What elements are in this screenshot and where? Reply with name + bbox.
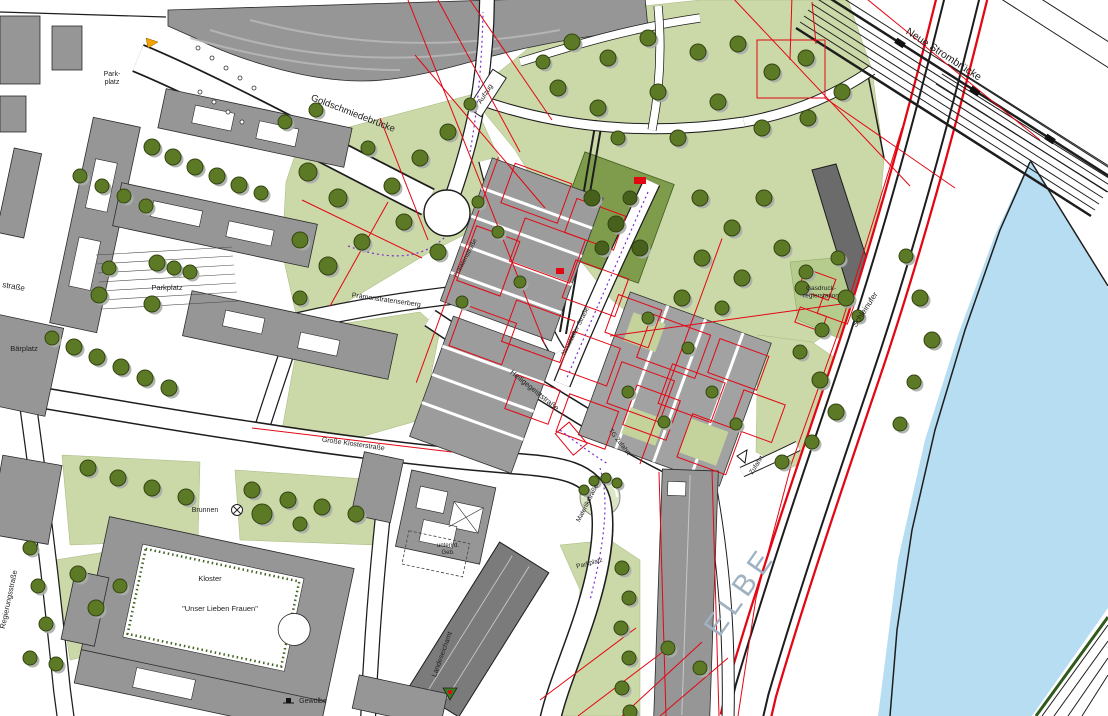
- orange-marker-icon: [146, 38, 158, 48]
- label-brunnen: Brunnen: [192, 507, 219, 514]
- building-nw-a: [0, 16, 40, 84]
- tree-icon: [893, 417, 910, 434]
- tree-icon: [113, 359, 132, 378]
- tree-icon: [187, 159, 206, 178]
- tree-icon: [912, 290, 931, 309]
- tree-icon: [144, 139, 163, 158]
- label-kloster: Kloster: [198, 574, 222, 583]
- tree-icon: [66, 339, 85, 358]
- label-unser-lieben-frauen: "Unser Lieben Frauen": [182, 604, 258, 613]
- label-regierungsstrasse: Regierungsstraße: [0, 569, 19, 629]
- brunnen-symbol: [232, 505, 243, 516]
- tree-icon: [167, 261, 184, 278]
- tree-icon: [209, 168, 228, 187]
- tree-icon: [23, 651, 40, 668]
- tree-icon: [924, 332, 943, 351]
- tree-icon: [161, 380, 180, 399]
- label-parkplatz-nordwest: Park-platz: [104, 71, 121, 86]
- label-strasse-fragment: straße: [2, 280, 26, 293]
- tree-icon: [149, 255, 168, 274]
- roundabout: [424, 190, 470, 236]
- label-gewoelbe: Gewölbe: [299, 698, 327, 705]
- zufahrt-arrow-icon: [737, 450, 747, 463]
- city-plan-svg: GoldschmiedebrückeAufzugNeue Strombrücke…: [0, 0, 1108, 716]
- red-marker-2: [634, 177, 646, 184]
- building-nw-c: [0, 96, 26, 132]
- red-marker-1: [556, 268, 564, 274]
- tree-icon: [165, 149, 184, 168]
- map-canvas: GoldschmiedebrückeAufzugNeue Strombrücke…: [0, 0, 1108, 716]
- label-gasdruckreglerstation: Gasdruck-reglerstation: [803, 285, 839, 300]
- tree-icon: [907, 375, 924, 392]
- tree-icon: [89, 349, 108, 368]
- label-baerplatz: Bärplatz: [10, 344, 38, 353]
- block-west-edge: [0, 148, 42, 238]
- tree-icon: [430, 244, 449, 263]
- tree-icon: [254, 186, 271, 203]
- label-parkplatz-west: Parkplatz: [151, 283, 183, 292]
- building-nw-b: [52, 26, 82, 70]
- tree-icon: [231, 177, 250, 196]
- building-fuerstenwall: [654, 469, 719, 716]
- tree-icon: [137, 370, 156, 389]
- tree-icon: [144, 296, 163, 315]
